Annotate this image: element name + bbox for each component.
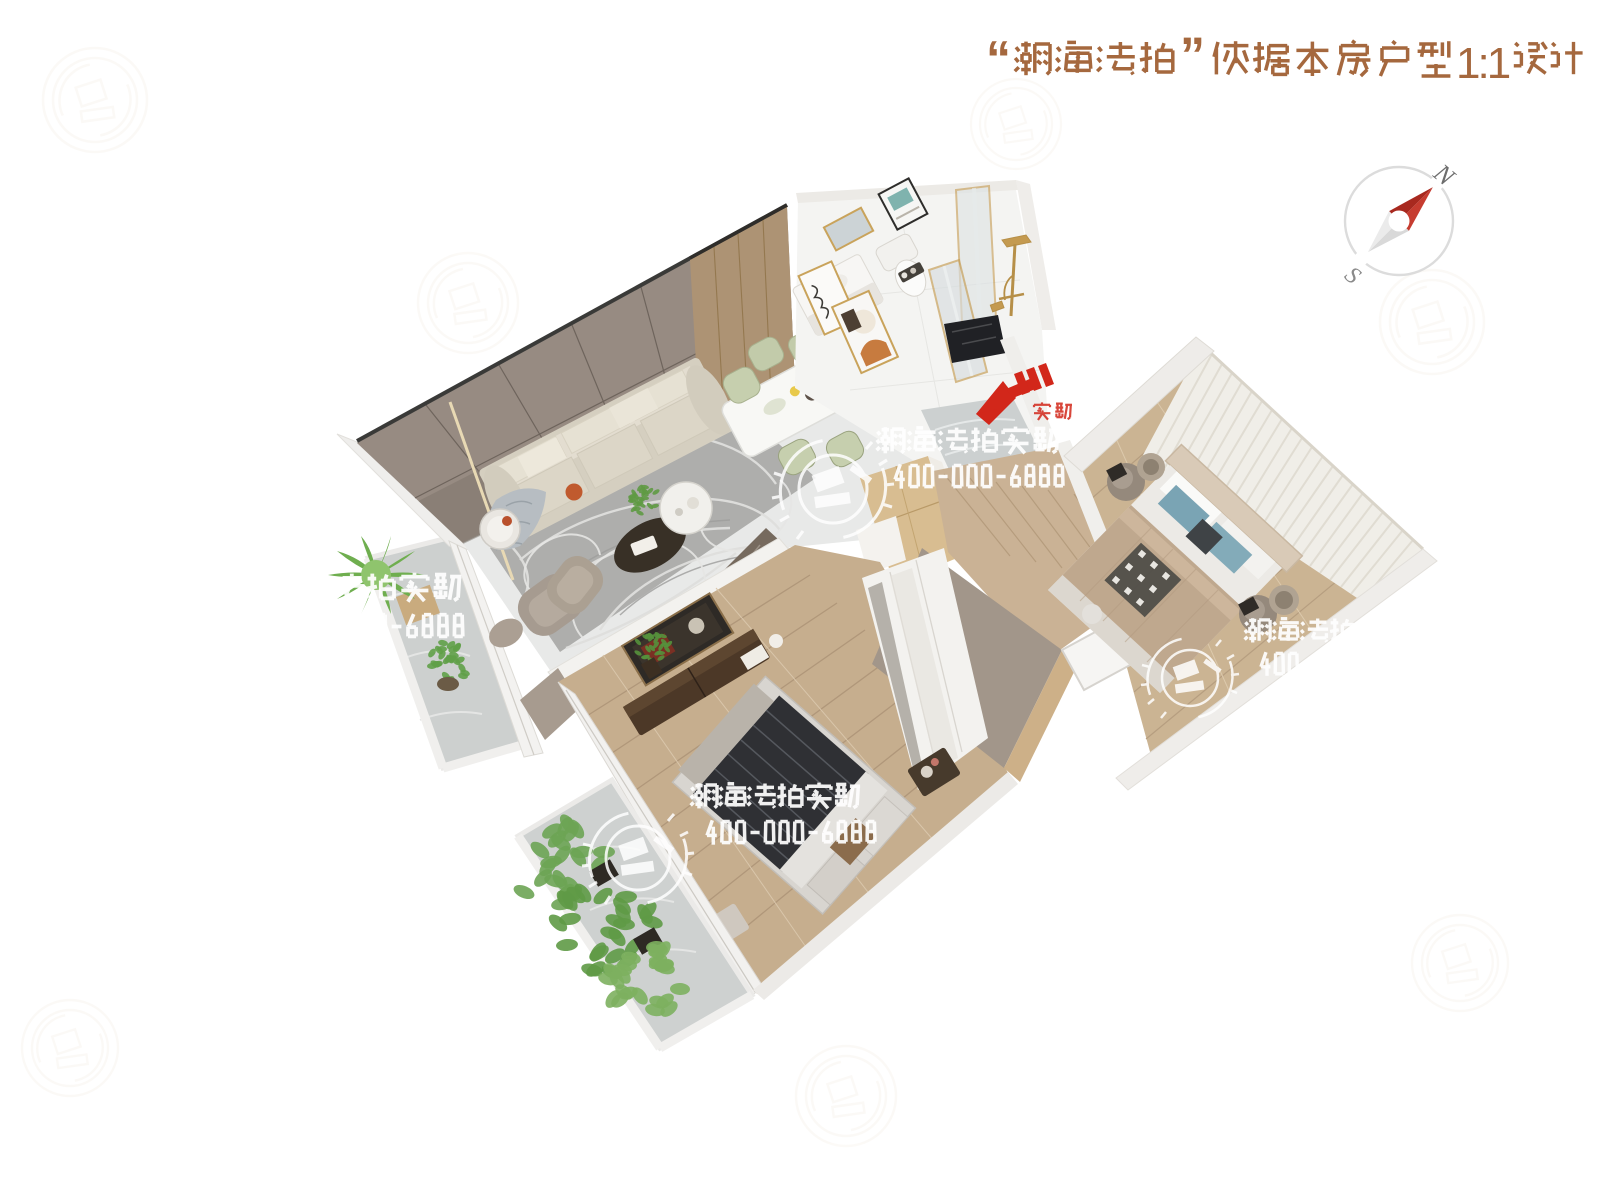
svg-text:“: “ xyxy=(986,31,1011,87)
svg-text:1:1: 1:1 xyxy=(1456,39,1510,88)
svg-text:”: ” xyxy=(1180,27,1205,83)
